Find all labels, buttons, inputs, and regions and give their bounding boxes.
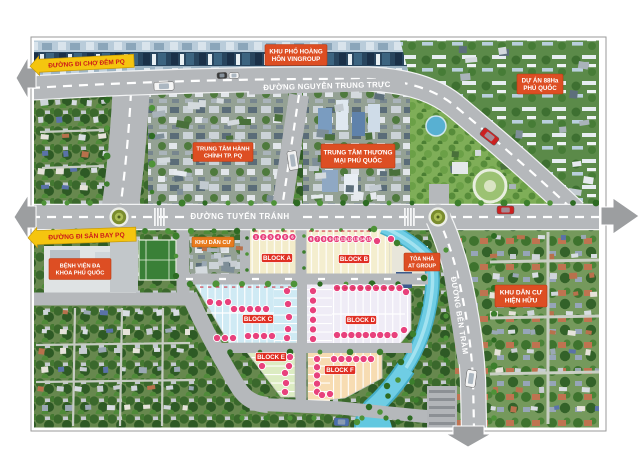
svg-text:ĐƯỜNG TUYẾN TRÁNH: ĐƯỜNG TUYẾN TRÁNH [190, 211, 289, 221]
svg-text:BLOCK F: BLOCK F [326, 367, 354, 374]
svg-text:DỰ ÁN 88Ha: DỰ ÁN 88Ha [522, 77, 559, 84]
svg-text:BLOCK A: BLOCK A [263, 255, 291, 262]
svg-text:11: 11 [341, 237, 346, 242]
svg-text:PHÚ QUỐC: PHÚ QUỐC [523, 85, 557, 92]
svg-text:KHU DÂN CƯ: KHU DÂN CƯ [500, 287, 543, 296]
svg-text:KHU DÂN CƯ: KHU DÂN CƯ [195, 239, 231, 246]
svg-text:BLOCK B: BLOCK B [340, 256, 369, 263]
svg-text:KHOA PHÚ QUỐC: KHOA PHÚ QUỐC [56, 270, 105, 277]
svg-text:HIỆN HỮU: HIỆN HỮU [505, 296, 538, 305]
svg-text:TÒA NHÀ: TÒA NHÀ [410, 255, 434, 263]
svg-text:TRUNG TÂM HÀNH: TRUNG TÂM HÀNH [196, 146, 249, 153]
svg-text:15: 15 [366, 237, 371, 242]
svg-text:BLOCK C: BLOCK C [244, 316, 273, 323]
svg-text:12: 12 [347, 237, 352, 242]
svg-text:13: 13 [353, 237, 358, 242]
svg-text:BLOCK E: BLOCK E [257, 354, 285, 361]
svg-text:TRUNG TÂM THƯƠNG: TRUNG TÂM THƯƠNG [324, 147, 393, 156]
svg-text:HÔN VINGROUP: HÔN VINGROUP [272, 55, 320, 63]
svg-text:BLOCK D: BLOCK D [347, 317, 376, 324]
svg-text:14: 14 [360, 237, 365, 242]
svg-text:CHÍNH TP. PQ: CHÍNH TP. PQ [204, 152, 243, 160]
svg-text:KHU PHỐ HOÀNG: KHU PHỐ HOÀNG [269, 48, 322, 55]
svg-text:BỆNH VIỆN ĐA: BỆNH VIỆN ĐA [60, 262, 101, 270]
svg-text:10: 10 [334, 237, 339, 242]
svg-text:AT GROUP: AT GROUP [408, 263, 436, 269]
